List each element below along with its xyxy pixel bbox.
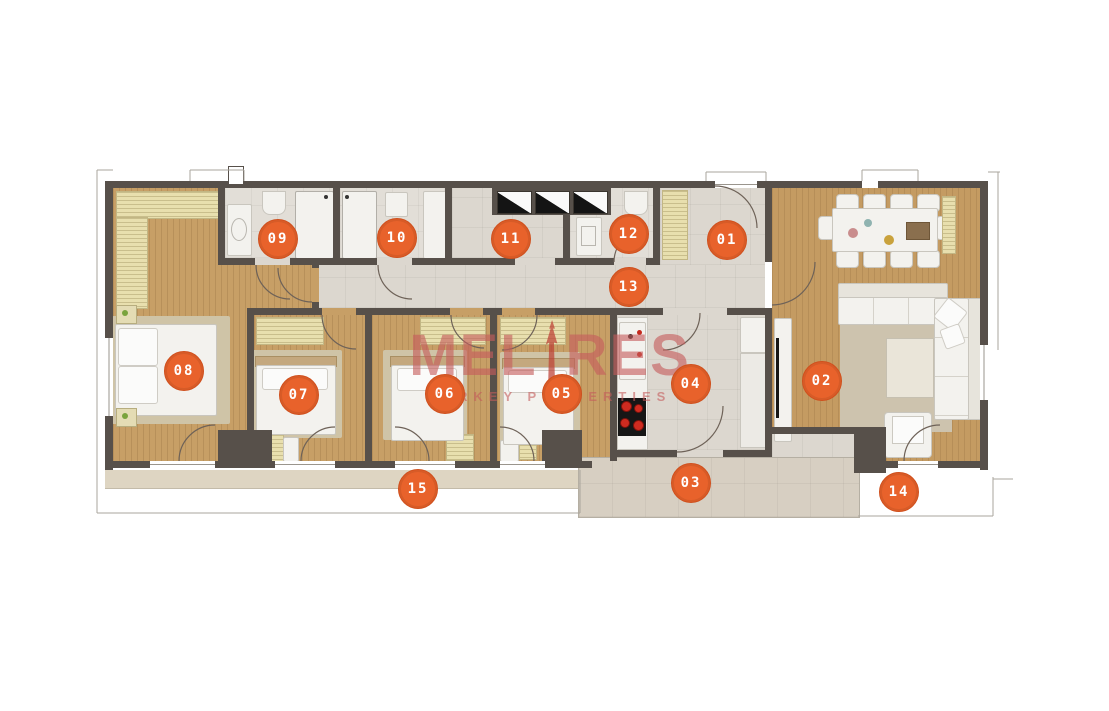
room-marker-11-utility-room: 11	[491, 219, 531, 259]
floor-plan: MELRES TURKEY PROPERTIES 010203040506070…	[0, 0, 1109, 711]
room-marker-13-hallway: 13	[609, 267, 649, 307]
watermark-brand: MELRES	[398, 320, 702, 382]
room-marker-08-master-bedroom: 08	[164, 351, 204, 391]
tower-logo-icon	[540, 320, 564, 382]
room-marker-14-balcony: 14	[879, 472, 919, 512]
room-marker-12-wc: 12	[609, 214, 649, 254]
room-marker-02-living-room: 02	[802, 361, 842, 401]
room-marker-10-bathroom: 10	[377, 218, 417, 258]
room-marker-03-terrace: 03	[671, 463, 711, 503]
room-marker-15-balcony: 15	[398, 469, 438, 509]
room-marker-06-bedroom: 06	[425, 374, 465, 414]
brand-suffix: RES	[566, 329, 691, 382]
room-marker-01-entrance-hall: 01	[707, 220, 747, 260]
room-marker-09-bathroom: 09	[258, 219, 298, 259]
brand-prefix: MEL	[409, 329, 537, 382]
room-marker-05-bedroom: 05	[542, 374, 582, 414]
room-marker-04-kitchen: 04	[671, 364, 711, 404]
room-marker-07-bedroom: 07	[279, 375, 319, 415]
